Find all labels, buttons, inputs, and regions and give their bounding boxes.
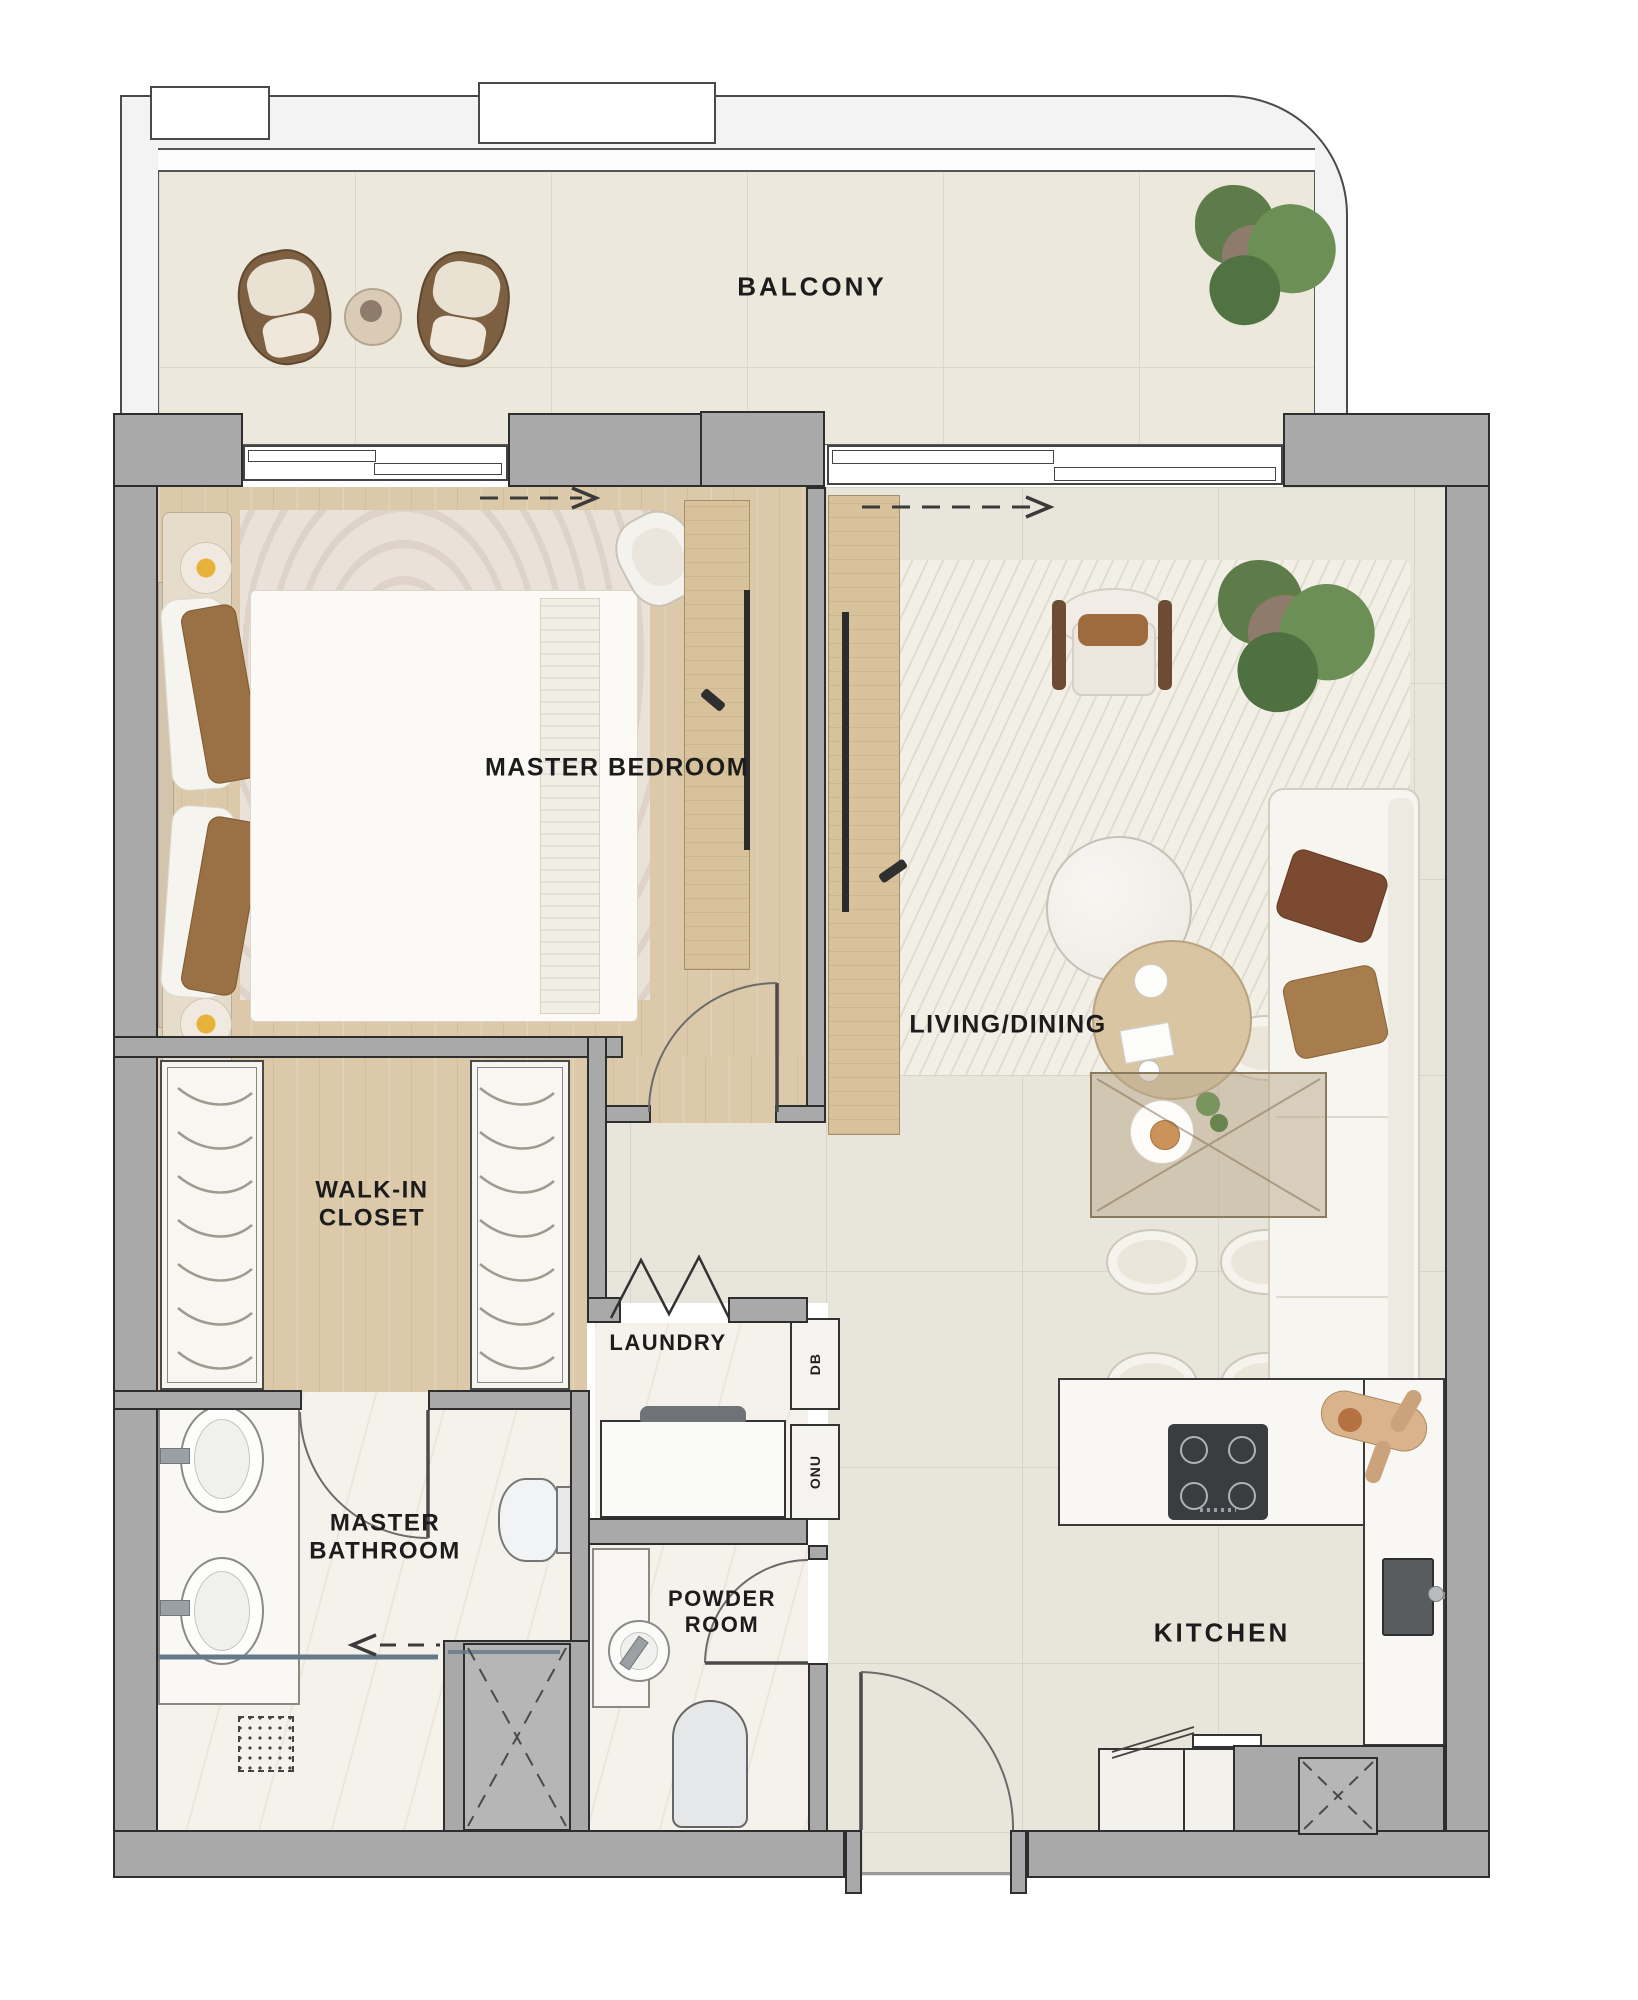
armchair-pillow bbox=[1078, 614, 1148, 646]
dining-chair bbox=[1106, 1229, 1198, 1295]
walk-in-closet-label: WALK-IN CLOSET bbox=[285, 1177, 460, 1234]
balcony-side-table bbox=[344, 288, 402, 346]
wall-closet-hall bbox=[587, 1036, 607, 1323]
magazine-icon bbox=[1119, 1022, 1174, 1064]
onu-label: ONU bbox=[807, 1455, 823, 1489]
sofa-cushion-seam bbox=[1276, 1296, 1388, 1298]
db-label-wrap: DB bbox=[790, 1318, 840, 1410]
entry-jamb-right bbox=[1010, 1830, 1027, 1894]
living-tv-icon bbox=[842, 612, 849, 912]
service-shaft bbox=[1298, 1757, 1378, 1835]
bedroom-console bbox=[684, 500, 750, 970]
kitchen-sink bbox=[1382, 1558, 1434, 1636]
wall-powder-right-b bbox=[808, 1663, 828, 1832]
sink-basin bbox=[194, 1571, 250, 1651]
table-lamp-icon bbox=[180, 542, 232, 594]
balcony-chair-seat-cushion bbox=[260, 310, 321, 360]
wall-bottom-right bbox=[1027, 1830, 1490, 1878]
wall-closet-top bbox=[113, 1036, 623, 1058]
wall-bottom-left bbox=[113, 1830, 845, 1878]
powder-room-label: POWDER ROOM bbox=[652, 1586, 792, 1638]
living-door-pane bbox=[832, 450, 1054, 464]
armchair-arm bbox=[1052, 600, 1066, 690]
dining-food-icon bbox=[1150, 1120, 1180, 1150]
laundry-label: LAUNDRY bbox=[609, 1330, 726, 1356]
balcony-step-mid bbox=[478, 82, 716, 144]
balcony-label: BALCONY bbox=[737, 272, 887, 303]
living-media-wall bbox=[828, 495, 900, 1135]
dining-plant-sprig-icon bbox=[1196, 1092, 1220, 1116]
table-plate bbox=[1134, 964, 1168, 998]
armchair-arm bbox=[1158, 600, 1172, 690]
wall-bedroom-door-cap bbox=[775, 1105, 826, 1123]
entry-threshold-line bbox=[862, 1872, 1010, 1875]
bedroom-window-pane bbox=[248, 450, 376, 462]
faucet-icon bbox=[160, 1448, 190, 1464]
living-dining-label: LIVING/DINING bbox=[909, 1010, 1106, 1040]
wall-top-pier bbox=[700, 411, 825, 487]
db-label: DB bbox=[807, 1353, 823, 1375]
wall-bath-top-b bbox=[428, 1390, 590, 1410]
wardrobe-right bbox=[470, 1060, 570, 1390]
floor-plan: DB ONU bbox=[0, 0, 1638, 2000]
toilet-icon bbox=[498, 1478, 560, 1562]
washing-machine-icon bbox=[600, 1420, 786, 1518]
wardrobe-interior bbox=[167, 1067, 257, 1383]
balcony-chair-back-cushion bbox=[429, 257, 503, 322]
shower-drain-icon bbox=[238, 1716, 294, 1772]
wardrobe-left bbox=[160, 1060, 264, 1390]
wall-right bbox=[1445, 413, 1490, 1878]
sink-basin bbox=[194, 1419, 250, 1499]
balcony-step-left bbox=[150, 86, 270, 140]
wall-powder-right-a bbox=[808, 1545, 828, 1560]
kitchen-label: KITCHEN bbox=[1154, 1618, 1291, 1649]
wall-left bbox=[113, 413, 158, 1878]
wardrobe-interior bbox=[477, 1067, 563, 1383]
bedroom-window-pane bbox=[374, 463, 502, 475]
wall-bedroom-door-stub bbox=[605, 1105, 651, 1123]
wall-top-b bbox=[508, 413, 708, 487]
faucet-icon bbox=[160, 1600, 190, 1616]
sink-icon bbox=[180, 1557, 264, 1665]
sofa-backrest bbox=[1388, 798, 1414, 1450]
master-bathroom-label: MASTER BATHROOM bbox=[278, 1510, 493, 1567]
wall-laundry-left bbox=[587, 1297, 621, 1323]
dining-chair-cushion bbox=[1117, 1240, 1187, 1284]
entry-threshold bbox=[862, 1832, 1010, 1876]
faucet-knob-icon bbox=[1428, 1586, 1444, 1602]
onu-label-wrap: ONU bbox=[790, 1424, 840, 1520]
master-bedroom-label: MASTER BEDROOM bbox=[485, 753, 749, 783]
burner-icon bbox=[1180, 1436, 1208, 1464]
wall-bath-top-a bbox=[113, 1390, 302, 1410]
entry-jamb-left bbox=[845, 1830, 862, 1894]
wall-top-c bbox=[1283, 413, 1490, 487]
balcony-balustrade bbox=[158, 148, 1315, 172]
balcony-table-decor bbox=[360, 300, 382, 322]
cooktop-controls bbox=[1200, 1508, 1236, 1512]
toilet-icon bbox=[672, 1700, 748, 1828]
wall-top-a bbox=[113, 413, 243, 487]
bed-throw-blanket bbox=[540, 598, 600, 1014]
wall-partition-bedroom-living bbox=[806, 487, 826, 1123]
balcony-floor bbox=[158, 170, 1315, 445]
washing-machine-top bbox=[640, 1406, 746, 1422]
balcony-chair-seat-cushion bbox=[428, 313, 488, 362]
burner-icon bbox=[1180, 1482, 1208, 1510]
burner-icon bbox=[1228, 1436, 1256, 1464]
service-shaft bbox=[463, 1643, 571, 1831]
bedroom-tv-icon bbox=[744, 590, 750, 850]
wall-laundry-powder bbox=[587, 1518, 808, 1545]
balcony-chair-back-cushion bbox=[243, 254, 319, 321]
sink-icon bbox=[180, 1405, 264, 1513]
living-door-pane bbox=[1054, 467, 1276, 481]
dining-plant-sprig-icon bbox=[1210, 1114, 1228, 1132]
bread-icon bbox=[1338, 1408, 1362, 1432]
burner-icon bbox=[1228, 1482, 1256, 1510]
